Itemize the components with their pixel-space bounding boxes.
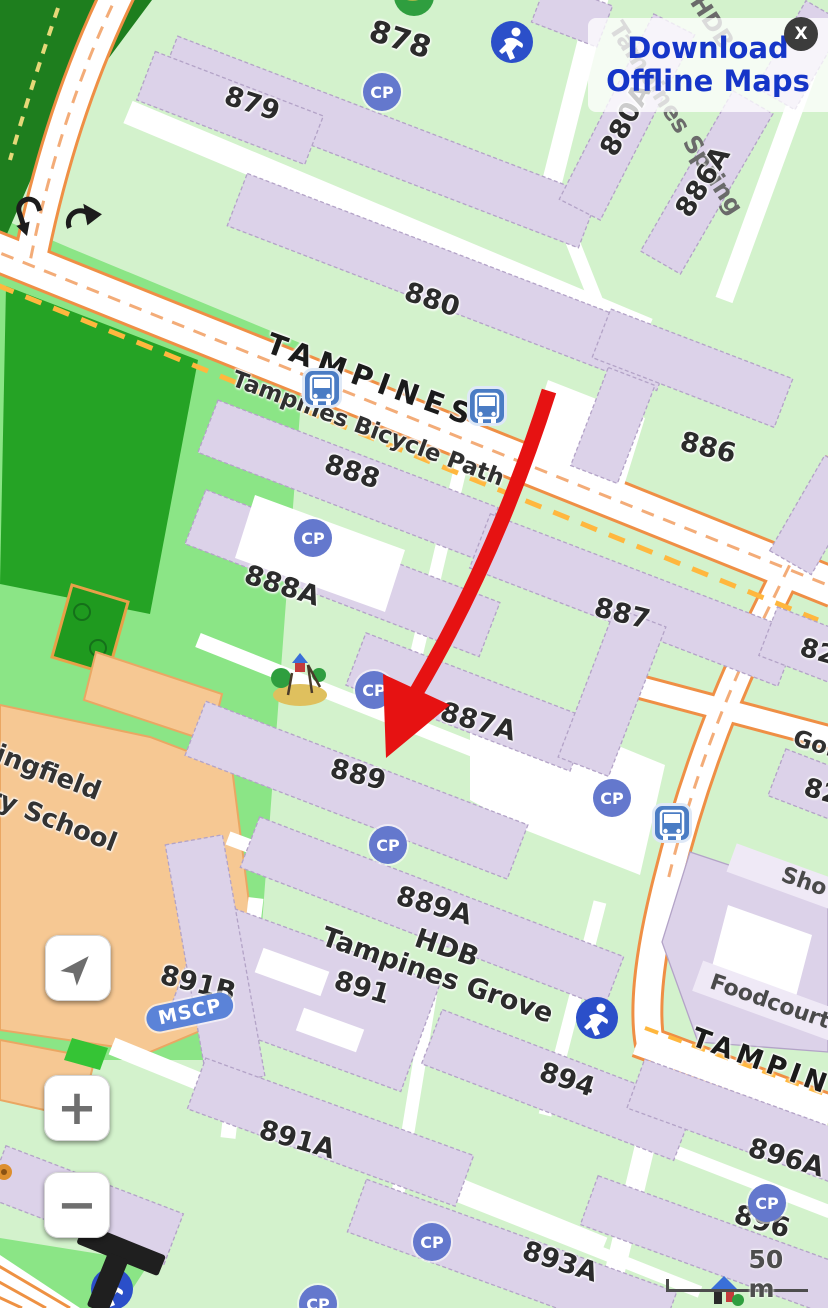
- hydrant-icon: [0, 1163, 13, 1181]
- bus-stop-icon: [467, 386, 507, 426]
- close-icon[interactable]: X: [784, 17, 818, 51]
- carpark-icon: CP: [294, 519, 332, 557]
- carpark-icon: CP: [363, 73, 401, 111]
- carpark-icon: CP: [413, 1223, 451, 1261]
- u-turn-arrow-icon: [57, 189, 107, 243]
- carpark-icon: CP: [369, 826, 407, 864]
- bus-stop-icon: [302, 368, 342, 408]
- zoom-out-button[interactable]: −: [44, 1172, 110, 1238]
- person-activity-icon: [575, 996, 619, 1040]
- minus-icon: −: [57, 1181, 97, 1229]
- download-line2: Offline Maps: [606, 65, 810, 98]
- scale-bar-tick: [666, 1279, 669, 1291]
- carpark-label: CP: [600, 789, 623, 808]
- playground-icon: [390, 0, 438, 22]
- navigation-arrow-icon: [58, 948, 98, 988]
- carpark-label: CP: [370, 83, 393, 102]
- carpark-icon: CP: [748, 1184, 786, 1222]
- bus-stop-icon: [652, 803, 692, 843]
- carpark-label: CP: [755, 1194, 778, 1213]
- map-canvas[interactable]: HDB Tampines Spring 878 879 880 880A 886…: [0, 0, 828, 1308]
- download-line1: Download: [627, 32, 789, 65]
- close-label: X: [794, 24, 807, 44]
- zoom-in-button[interactable]: +: [44, 1075, 110, 1141]
- locate-me-button[interactable]: [45, 935, 111, 1001]
- carpark-label: CP: [362, 681, 385, 700]
- carpark-label: CP: [376, 836, 399, 855]
- carpark-label: CP: [306, 1295, 329, 1308]
- carpark-icon: CP: [355, 671, 393, 709]
- carpark-label: CP: [301, 529, 324, 548]
- scale-label: 50 m: [749, 1245, 802, 1303]
- carpark-icon: CP: [593, 779, 631, 817]
- playground-icon: [268, 651, 332, 709]
- carpark-label: CP: [420, 1233, 443, 1252]
- person-activity-icon: [490, 20, 534, 64]
- plus-icon: +: [57, 1084, 97, 1132]
